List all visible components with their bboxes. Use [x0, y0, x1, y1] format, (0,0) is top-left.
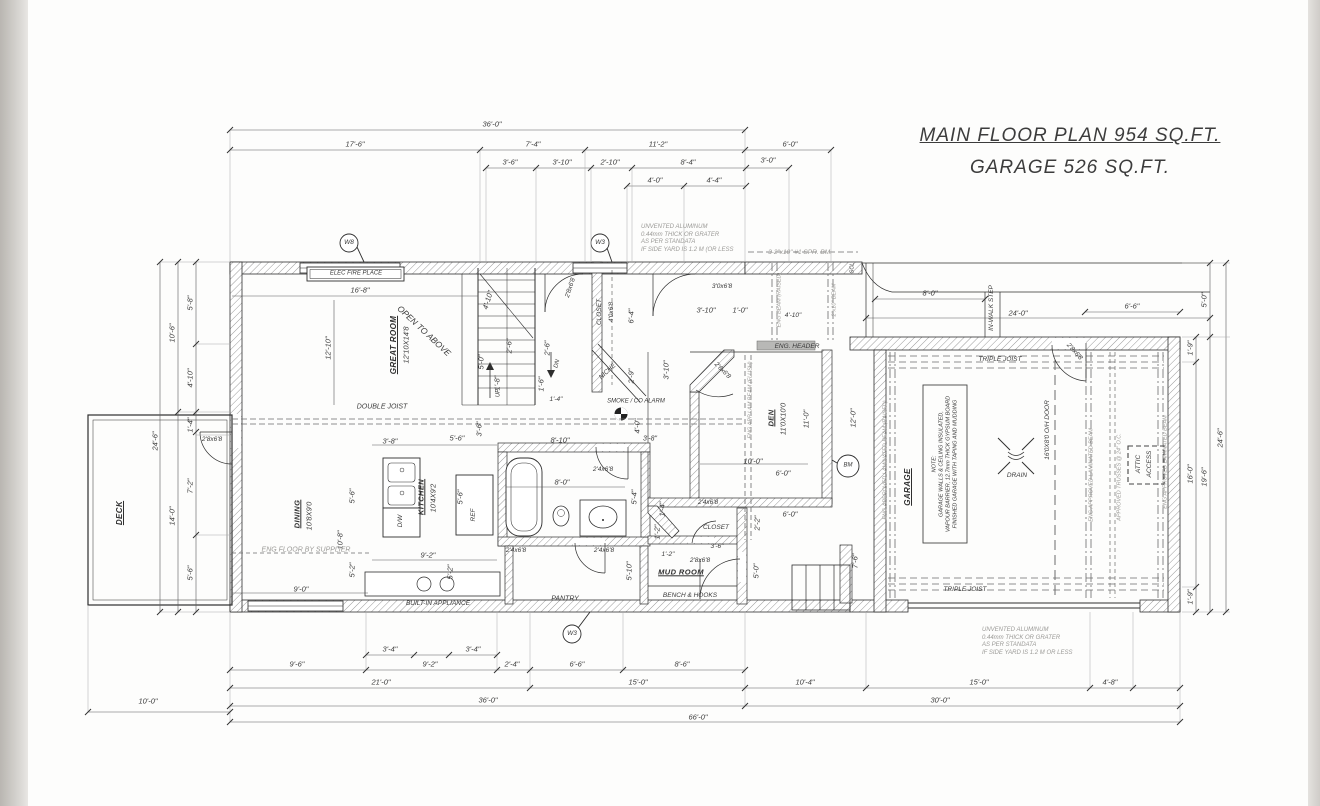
overhead-door — [908, 603, 1140, 608]
plan-title: MAIN FLOOR PLAN 954 SQ.FT. — [905, 125, 1235, 151]
window-symbols — [231, 263, 1086, 611]
exterior-walls — [230, 262, 1180, 612]
walkway-steps — [648, 263, 1210, 610]
eng-header-bar — [757, 341, 815, 350]
interior-walls — [498, 262, 852, 604]
title-block: MAIN FLOOR PLAN 954 SQ.FT. GARAGE 526 SQ… — [905, 125, 1235, 179]
smoke-co-alarm-icon — [615, 408, 628, 421]
extension-lines — [88, 130, 1230, 722]
floorplan-linework — [0, 0, 1320, 806]
bath-fixtures — [506, 458, 626, 536]
attic-access-box — [1128, 446, 1164, 484]
garage-note-box — [923, 385, 967, 543]
kitchen-fixtures — [365, 458, 500, 596]
garage-title: GARAGE 526 SQ.FT. — [905, 157, 1235, 179]
floor-drain — [998, 438, 1034, 474]
floor-plan-sheet: 36'-0"17'-6"7'-4"11'-2"6'-0"3'-6"3'-10"2… — [0, 0, 1320, 806]
stairs — [462, 268, 555, 405]
dimension-ticks — [85, 127, 1229, 725]
fireplace — [307, 267, 404, 281]
